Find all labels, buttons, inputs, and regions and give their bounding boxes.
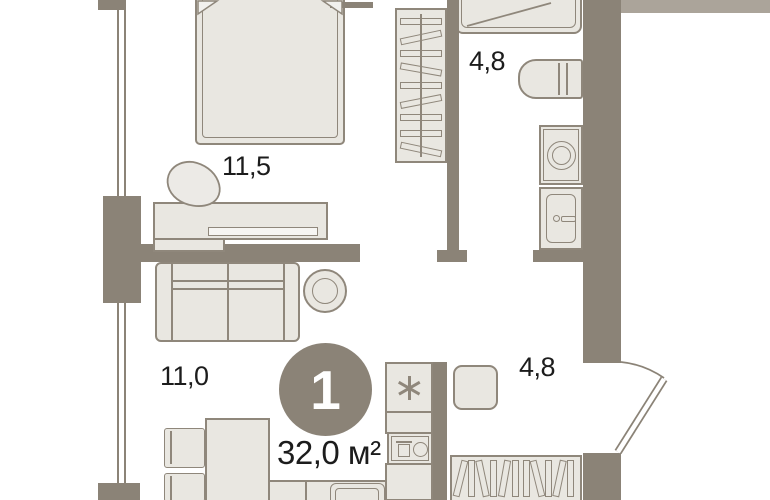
hallway-area-label: 4,8 <box>519 352 555 383</box>
entry-door-leaf <box>618 379 664 452</box>
window-icon <box>124 301 126 485</box>
faucet-icon <box>553 215 560 222</box>
wall-left-top-cap <box>98 0 126 10</box>
bathroom-sink-icon <box>539 187 583 250</box>
wall-top-segment <box>330 2 373 8</box>
wall-left-bottom-cap <box>98 483 140 500</box>
apartment-floor-plan: 11,5 11,0 4,8 4,8 1 32,0 м² <box>0 0 770 500</box>
kitchen-base-unit <box>385 463 433 500</box>
toilet-icon <box>518 59 583 99</box>
fridge-icon <box>385 362 433 413</box>
burner-icon <box>413 442 428 457</box>
dining-table-icon <box>205 418 270 500</box>
tv-icon <box>208 227 318 236</box>
wall-bathroom-left <box>447 0 459 250</box>
total-area-label: 32,0 м² <box>277 434 381 472</box>
wall-bathroom-left-foot <box>437 250 467 262</box>
bed-icon <box>195 0 345 145</box>
wall-entry-lower <box>583 453 621 500</box>
bathroom-area-label: 4,8 <box>469 46 505 77</box>
chair-icon <box>164 428 205 468</box>
tv-stand-icon <box>153 202 328 240</box>
wall-bathroom-bottom-stub <box>533 250 583 262</box>
wall-left-middle <box>103 196 141 303</box>
snowflake-icon <box>397 376 421 400</box>
window-icon <box>117 301 119 485</box>
bedroom-area-label: 11,5 <box>222 151 271 182</box>
wall-right <box>583 0 621 363</box>
hall-wardrobe-icon <box>450 455 582 500</box>
door-swing-arc <box>621 362 664 378</box>
entry-door-icon <box>618 379 664 452</box>
kettle-icon <box>398 444 410 457</box>
hall-table-icon <box>453 365 498 410</box>
sofa-icon <box>155 262 300 342</box>
wardrobe-rail <box>420 14 422 157</box>
pouf-icon <box>303 269 347 313</box>
faucet-handle <box>561 216 576 222</box>
kitchen-tall-unit <box>385 411 433 434</box>
wall-kitchen-side <box>433 362 447 500</box>
window-icon <box>124 8 126 198</box>
kitchen-sink-icon <box>330 483 385 500</box>
neighbor-wall-strip <box>621 0 770 13</box>
kettle-icon <box>396 441 412 443</box>
window-icon <box>117 8 119 198</box>
beanbag-icon <box>168 162 220 206</box>
tv-stand-drawer <box>153 238 225 252</box>
washing-machine-icon <box>539 125 583 185</box>
living-area-label: 11,0 <box>160 361 209 392</box>
stove-icon <box>387 432 433 465</box>
chair-icon <box>164 473 205 500</box>
wardrobe-icon <box>395 8 447 163</box>
shower-icon <box>455 0 582 34</box>
rooms-count-badge: 1 <box>279 343 372 436</box>
